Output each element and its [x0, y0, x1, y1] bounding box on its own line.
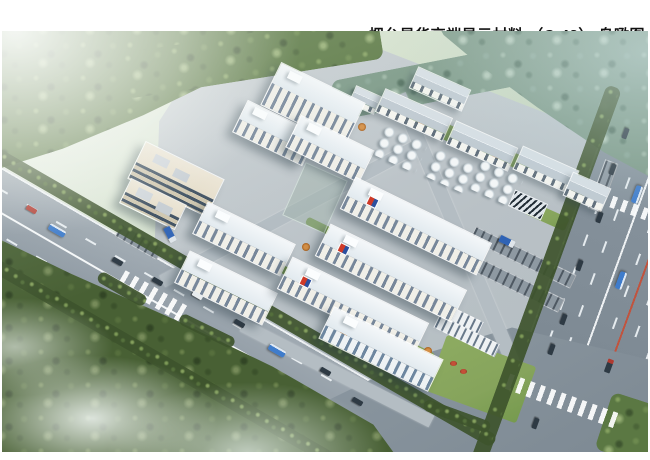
- page-root: 烟台显华高端显示材料 （C-43） 鸟瞰图: [0, 0, 650, 460]
- aerial-rendering: [2, 31, 648, 452]
- shrub: [450, 361, 457, 366]
- shrub: [460, 369, 467, 374]
- orange-tree: [358, 123, 366, 131]
- orange-tree: [302, 243, 310, 251]
